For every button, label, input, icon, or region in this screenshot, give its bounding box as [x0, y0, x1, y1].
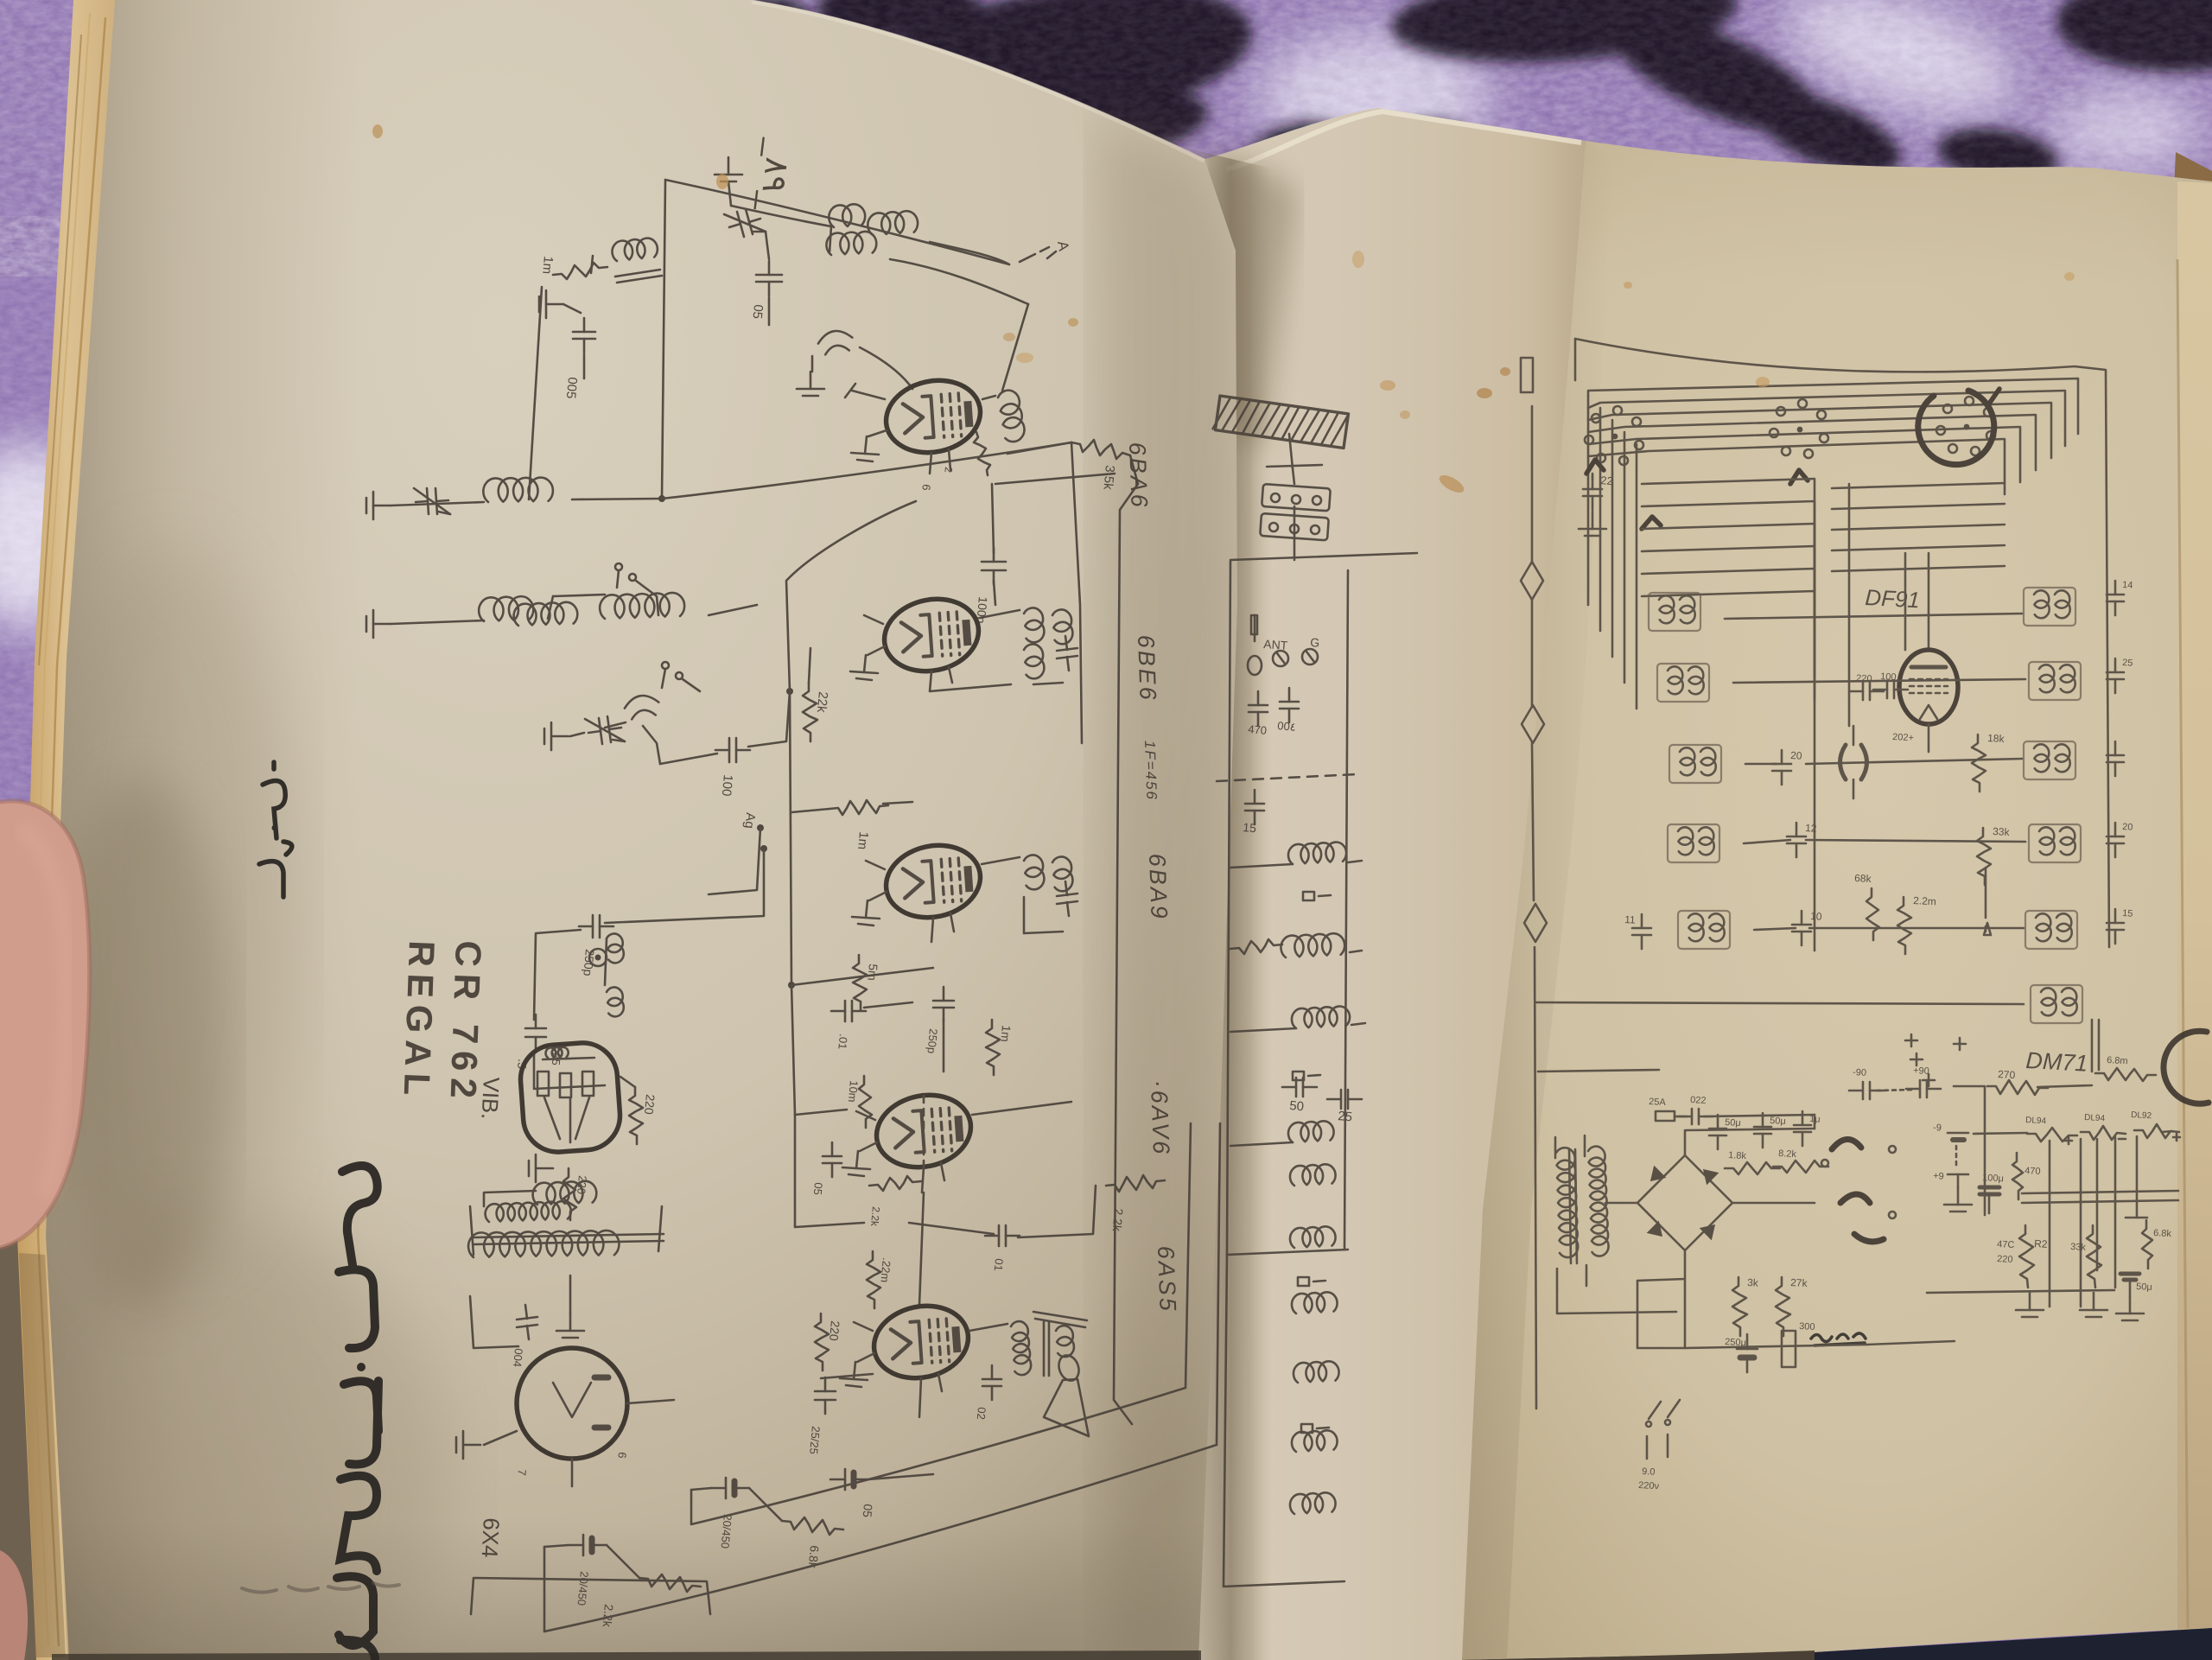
svg-text:8.2k: 8.2k	[1778, 1148, 1797, 1160]
svg-text:220: 220	[1856, 673, 1872, 684]
svg-text:CR 762: CR 762	[442, 940, 489, 1106]
svg-text:Ag: Ag	[741, 812, 758, 830]
svg-text:1.8k: 1.8k	[1728, 1150, 1747, 1161]
svg-text:11: 11	[1624, 913, 1636, 926]
svg-text:2.2k: 2.2k	[868, 1206, 882, 1228]
svg-text:220ν: 220ν	[1638, 1480, 1660, 1491]
svg-text:50μ: 50μ	[2136, 1282, 2152, 1293]
svg-text:05: 05	[861, 1504, 875, 1518]
svg-text:14: 14	[2122, 580, 2133, 591]
svg-text:DL92: DL92	[2131, 1110, 2152, 1121]
svg-text:50μ: 50μ	[1725, 1117, 1741, 1129]
svg-text:300: 300	[1799, 1321, 1815, 1332]
svg-text:2.2m: 2.2m	[1913, 894, 1936, 907]
svg-text:50μ: 50μ	[1770, 1116, 1786, 1127]
svg-text:220: 220	[1997, 1254, 2013, 1265]
svg-text:33k: 33k	[1993, 825, 2011, 838]
svg-text:1m: 1m	[539, 256, 556, 275]
svg-text:250p: 250p	[581, 949, 597, 977]
svg-text:1m: 1m	[855, 831, 871, 850]
svg-text:12: 12	[1805, 822, 1817, 835]
svg-text:100μ: 100μ	[1982, 1173, 2004, 1184]
svg-text:005: 005	[563, 377, 580, 399]
svg-text:6X4: 6X4	[477, 1517, 505, 1559]
svg-text:10m: 10m	[846, 1080, 861, 1103]
svg-text:6.8k: 6.8k	[2153, 1228, 2172, 1239]
svg-text:68k: 68k	[1854, 872, 1872, 885]
svg-text:6.8m: 6.8m	[2107, 1055, 2128, 1066]
svg-text:.01: .01	[836, 1034, 850, 1050]
svg-text:6BA6: 6BA6	[1124, 442, 1153, 510]
svg-text:470: 470	[1248, 722, 1268, 737]
svg-text:3.5k: 3.5k	[1101, 465, 1117, 491]
svg-text:G: G	[1310, 635, 1320, 650]
svg-text:25: 25	[2122, 658, 2133, 669]
svg-text:00٤: 00٤	[1277, 719, 1297, 734]
svg-text:202+: 202+	[1892, 732, 1914, 743]
svg-text:22: 22	[1600, 474, 1614, 487]
svg-text:270: 270	[1998, 1068, 2016, 1081]
svg-text:02: 02	[975, 1407, 988, 1421]
svg-text:47C: 47C	[1997, 1239, 2015, 1250]
svg-text:3k: 3k	[1747, 1276, 1759, 1289]
svg-text:100: 100	[719, 774, 735, 797]
svg-text:+90: +90	[1913, 1065, 1929, 1077]
svg-text:25/25: 25/25	[807, 1426, 823, 1455]
svg-text:1F=456: 1F=456	[1141, 740, 1160, 801]
svg-text:022: 022	[1690, 1095, 1707, 1106]
svg-text:DF91: DF91	[1865, 584, 1921, 613]
svg-text:6: 6	[615, 1452, 629, 1460]
svg-text:220: 220	[827, 1320, 842, 1342]
svg-text:01: 01	[992, 1258, 1006, 1272]
svg-text:DL94: DL94	[2025, 1116, 2047, 1126]
svg-text:1m: 1m	[998, 1025, 1014, 1043]
svg-text:50: 50	[1289, 1098, 1305, 1114]
svg-text:22k: 22k	[814, 691, 830, 714]
svg-text:250p: 250p	[925, 1028, 939, 1054]
svg-text:004: 004	[511, 1348, 525, 1368]
svg-text:6AS5: 6AS5	[1153, 1245, 1181, 1313]
svg-text:ANT: ANT	[1263, 637, 1288, 652]
svg-text:20: 20	[2122, 822, 2133, 833]
svg-text:33k: 33k	[2070, 1242, 2087, 1253]
svg-text:-90: -90	[1853, 1067, 1867, 1078]
svg-text:10: 10	[1810, 910, 1822, 923]
svg-text:220: 220	[642, 1094, 658, 1116]
svg-text:DL94: DL94	[2084, 1113, 2106, 1123]
svg-text:+9: +9	[1933, 1171, 1944, 1182]
svg-text:05: 05	[750, 304, 766, 320]
svg-text:05: 05	[811, 1182, 825, 1196]
svg-text:DM71: DM71	[2025, 1047, 2089, 1077]
svg-text:5m: 5m	[865, 964, 880, 982]
svg-text:9.0: 9.0	[1642, 1466, 1656, 1478]
svg-text:15: 15	[1243, 820, 1257, 835]
svg-text:R2: R2	[2034, 1237, 2048, 1250]
svg-text:20: 20	[1790, 749, 1802, 762]
svg-text:470: 470	[2024, 1166, 2041, 1177]
svg-text:2.2k: 2.2k	[1110, 1208, 1126, 1233]
svg-text:-9: -9	[1933, 1123, 1942, 1133]
svg-text:6: 6	[919, 484, 933, 492]
svg-text:7: 7	[515, 1469, 529, 1477]
svg-text:18k: 18k	[1987, 732, 2005, 745]
svg-text:REGAL: REGAL	[396, 940, 442, 1103]
svg-text:25A: 25A	[1649, 1097, 1667, 1108]
svg-text:15: 15	[2122, 908, 2133, 919]
svg-text:.22m: .22m	[878, 1257, 893, 1283]
svg-text:·6AV6: ·6AV6	[1146, 1079, 1174, 1157]
svg-text:6BA9: 6BA9	[1144, 853, 1173, 921]
svg-text:27k: 27k	[1790, 1276, 1808, 1289]
svg-text:6BE6: 6BE6	[1133, 634, 1161, 703]
